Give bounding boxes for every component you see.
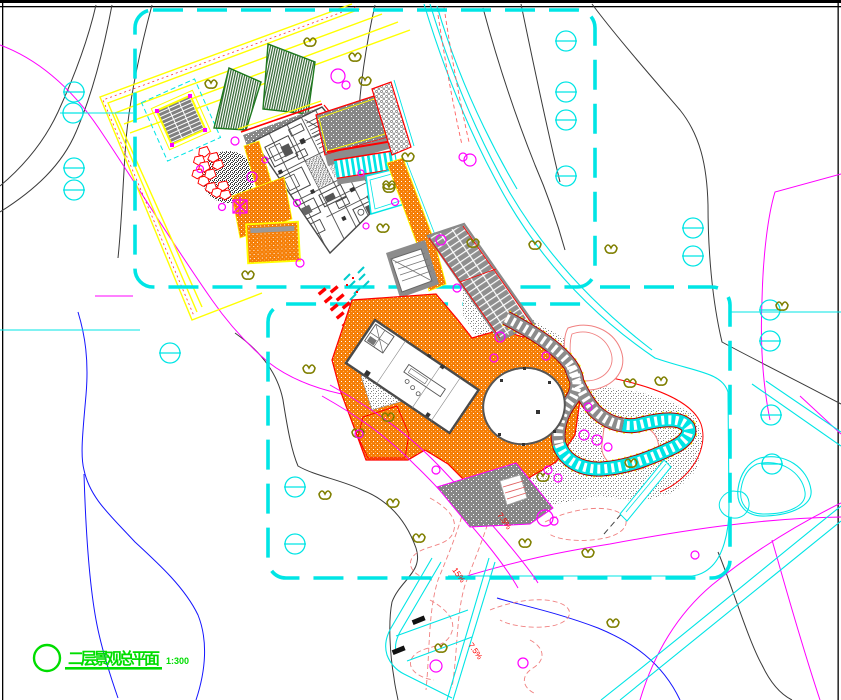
svg-text:1:300: 1:300 [166, 656, 189, 666]
svg-text:二层景观总平面: 二层景观总平面 [68, 649, 160, 668]
